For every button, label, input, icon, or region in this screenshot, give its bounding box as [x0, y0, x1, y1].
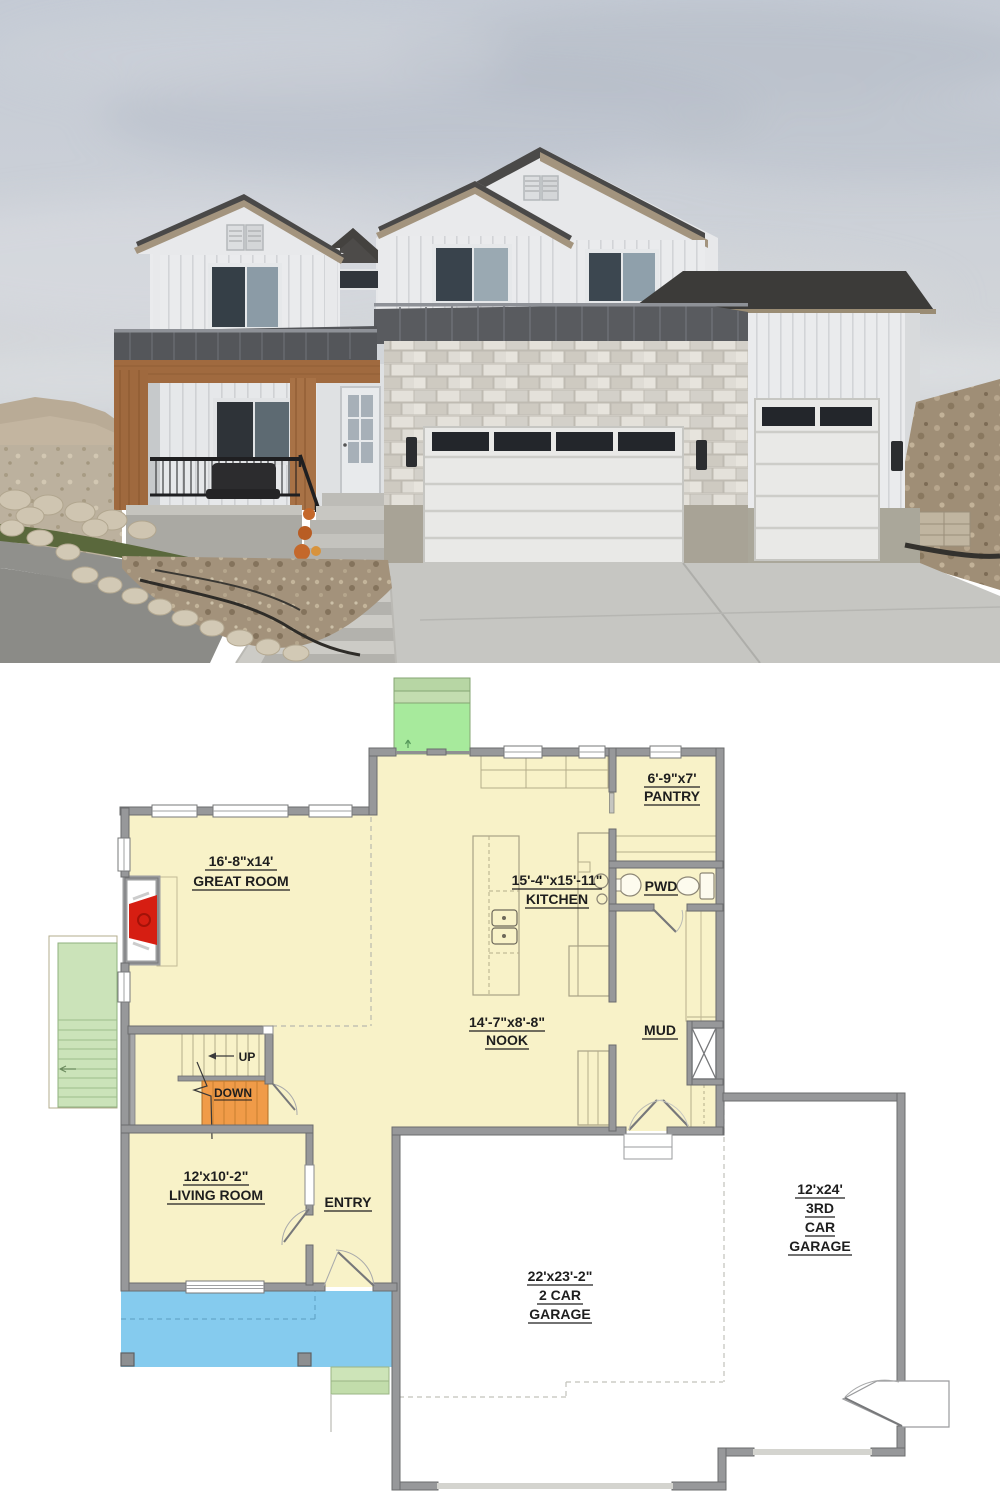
svg-text:6'-9"x7': 6'-9"x7'	[647, 770, 696, 786]
svg-text:UP: UP	[239, 1050, 256, 1064]
svg-text:22'x23'-2": 22'x23'-2"	[528, 1268, 593, 1284]
svg-text:CAR: CAR	[805, 1219, 835, 1235]
svg-text:DOWN: DOWN	[214, 1086, 252, 1100]
svg-text:MUD: MUD	[644, 1022, 676, 1038]
svg-text:GARAGE: GARAGE	[529, 1306, 590, 1322]
svg-text:LIVING ROOM: LIVING ROOM	[169, 1187, 263, 1203]
svg-text:12'x10'-2": 12'x10'-2"	[184, 1168, 249, 1184]
svg-text:16'-8"x14': 16'-8"x14'	[209, 853, 274, 869]
svg-text:GREAT ROOM: GREAT ROOM	[193, 873, 288, 889]
svg-text:12'x24': 12'x24'	[797, 1181, 843, 1197]
svg-text:2 CAR: 2 CAR	[539, 1287, 581, 1303]
svg-text:14'-7"x8'-8": 14'-7"x8'-8"	[469, 1014, 545, 1030]
svg-text:ENTRY: ENTRY	[325, 1194, 373, 1210]
svg-text:KITCHEN: KITCHEN	[526, 891, 588, 907]
svg-text:PWD: PWD	[645, 878, 678, 894]
svg-text:NOOK: NOOK	[486, 1032, 528, 1048]
svg-text:PANTRY: PANTRY	[644, 788, 701, 804]
svg-text:3RD: 3RD	[806, 1200, 834, 1216]
svg-text:15'-4"x15'-11": 15'-4"x15'-11"	[512, 872, 603, 888]
svg-text:GARAGE: GARAGE	[789, 1238, 850, 1254]
